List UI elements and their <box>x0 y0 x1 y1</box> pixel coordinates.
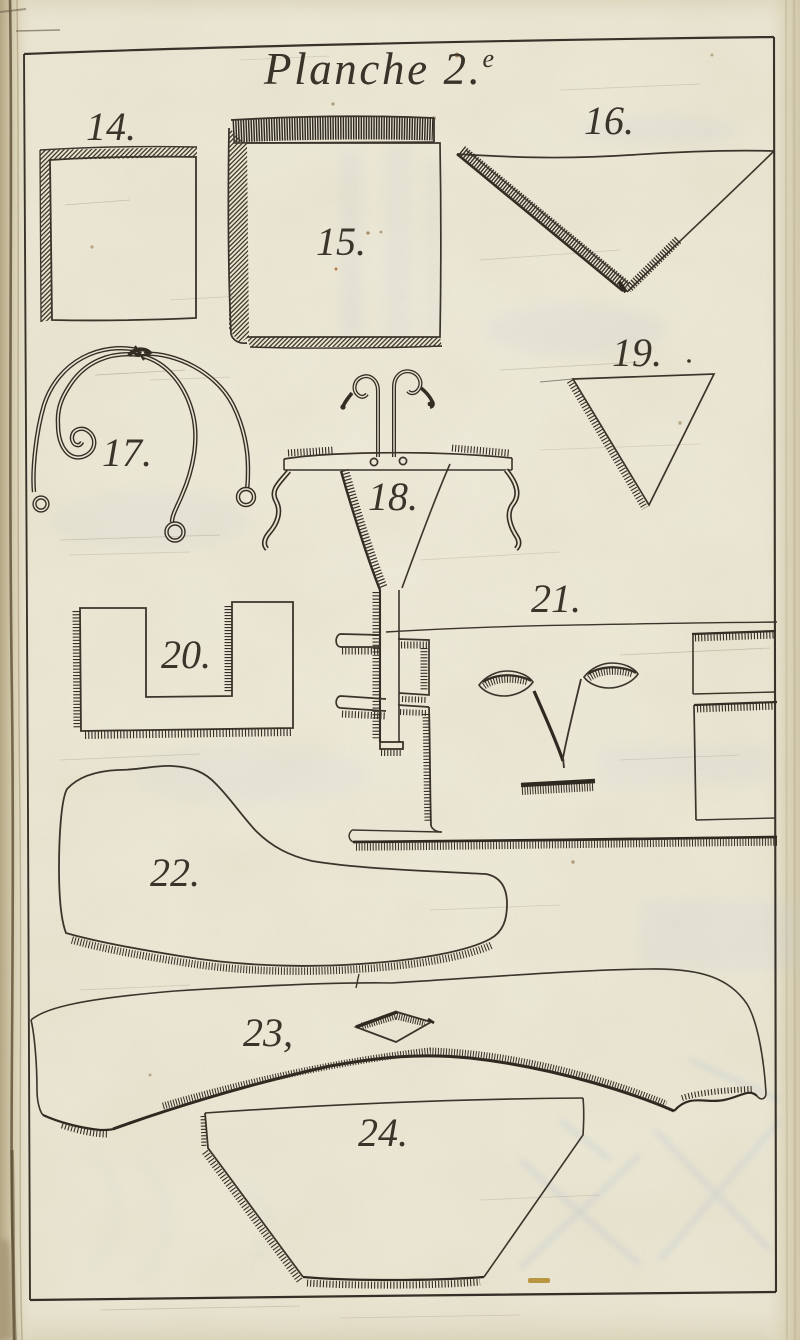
svg-text:20.: 20. <box>161 632 211 677</box>
svg-text:24.: 24. <box>358 1110 408 1155</box>
svg-text:23,: 23, <box>243 1010 293 1055</box>
svg-text:19.: 19. <box>612 330 662 375</box>
svg-text:22.: 22. <box>150 850 200 895</box>
svg-text:18.: 18. <box>368 474 418 519</box>
svg-text:14.: 14. <box>86 104 136 149</box>
svg-text:17.: 17. <box>102 430 152 475</box>
svg-text:15.: 15. <box>316 219 366 264</box>
svg-text:Planche 2.e: Planche 2.e <box>263 44 497 94</box>
svg-text:16.: 16. <box>584 98 634 143</box>
svg-text:21.: 21. <box>531 576 581 621</box>
